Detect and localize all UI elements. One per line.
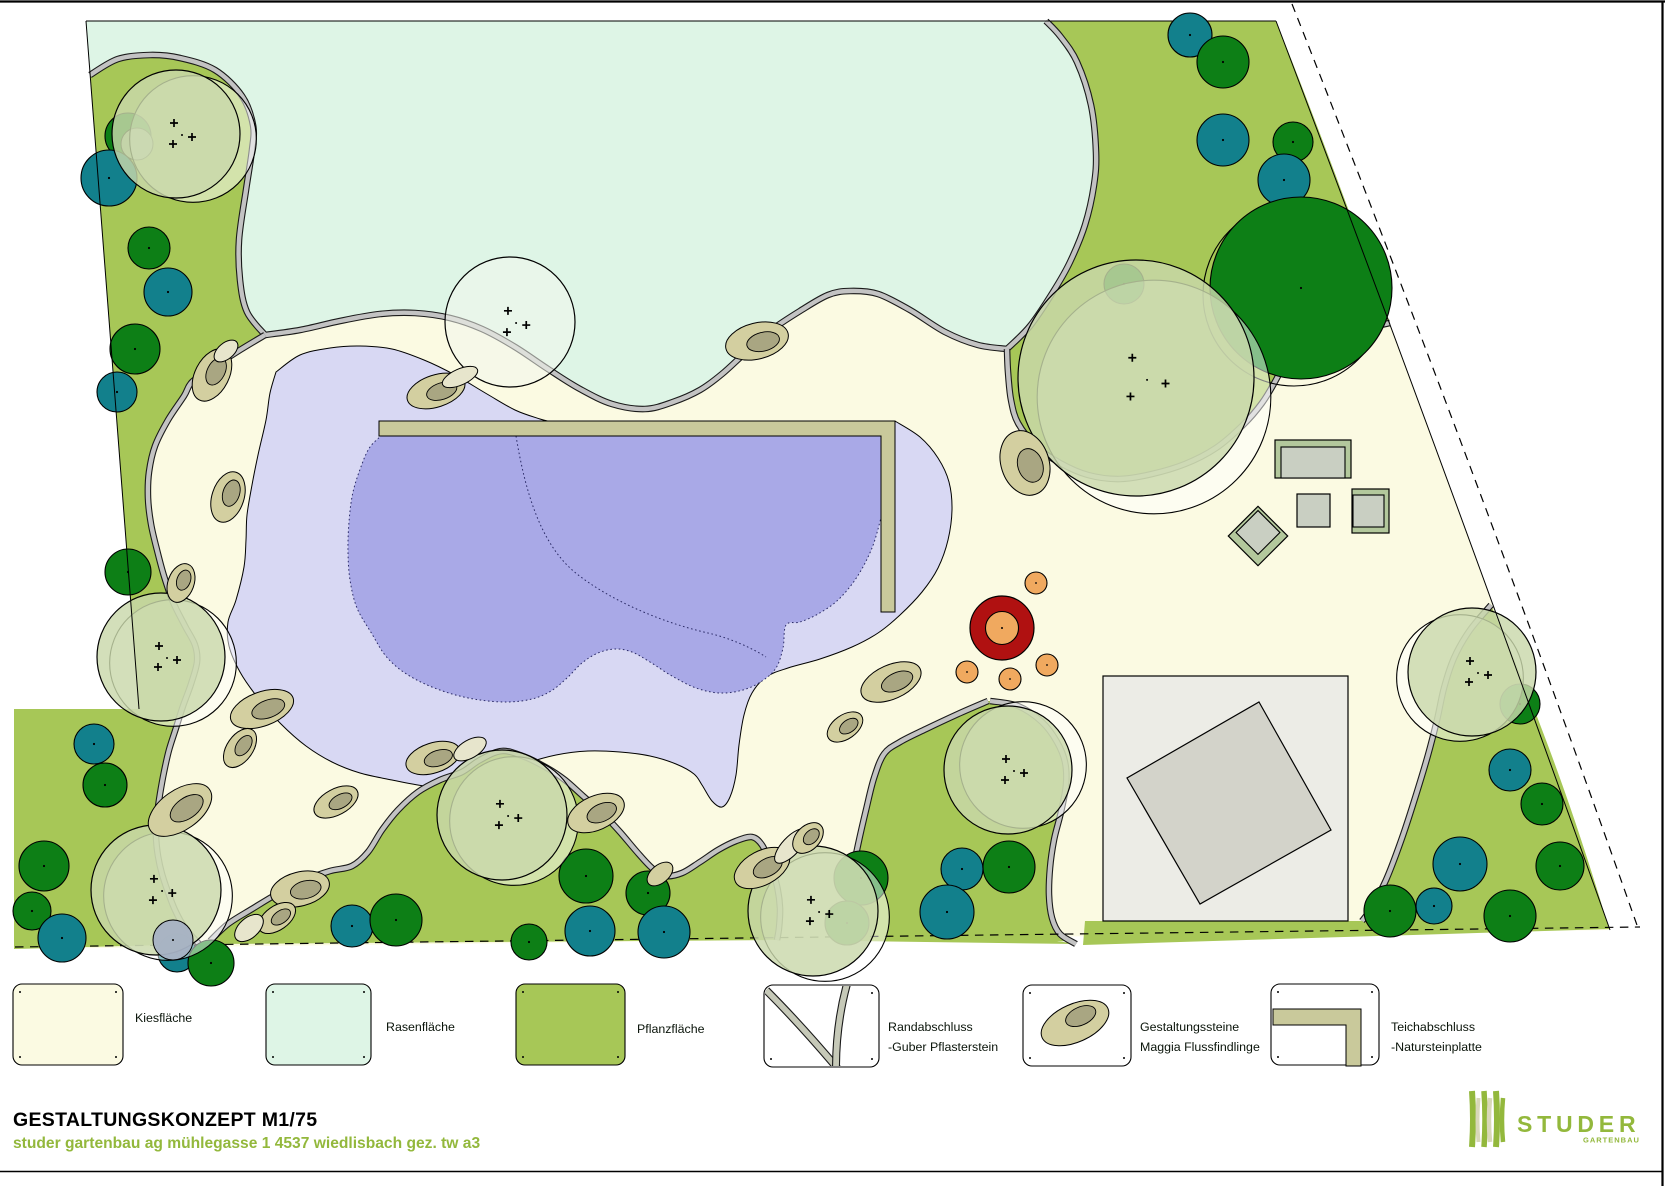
svg-text:Gestaltungssteine: Gestaltungssteine: [1140, 1020, 1239, 1034]
svg-text:GESTALTUNGSKONZEPT M1/75: GESTALTUNGSKONZEPT M1/75: [13, 1109, 317, 1131]
svg-text:Pflanzfläche: Pflanzfläche: [637, 1022, 705, 1036]
svg-text:STUDER: STUDER: [1517, 1111, 1640, 1137]
svg-text:Teichabschluss: Teichabschluss: [1391, 1020, 1475, 1034]
svg-text:Randabschluss: Randabschluss: [888, 1020, 973, 1034]
svg-text:GARTENBAU: GARTENBAU: [1583, 1136, 1640, 1145]
svg-text:-Guber Pflasterstein: -Guber Pflasterstein: [888, 1040, 998, 1054]
svg-text:Kiesfläche: Kiesfläche: [135, 1011, 192, 1025]
svg-text:Maggia Flussfindlinge: Maggia Flussfindlinge: [1140, 1040, 1260, 1054]
svg-text:-Natursteinplatte: -Natursteinplatte: [1391, 1040, 1482, 1054]
svg-text:Rasenfläche: Rasenfläche: [386, 1020, 455, 1034]
svg-text:studer gartenbau ag mühlegasse: studer gartenbau ag mühlegasse 1 4537 wi…: [13, 1135, 480, 1152]
